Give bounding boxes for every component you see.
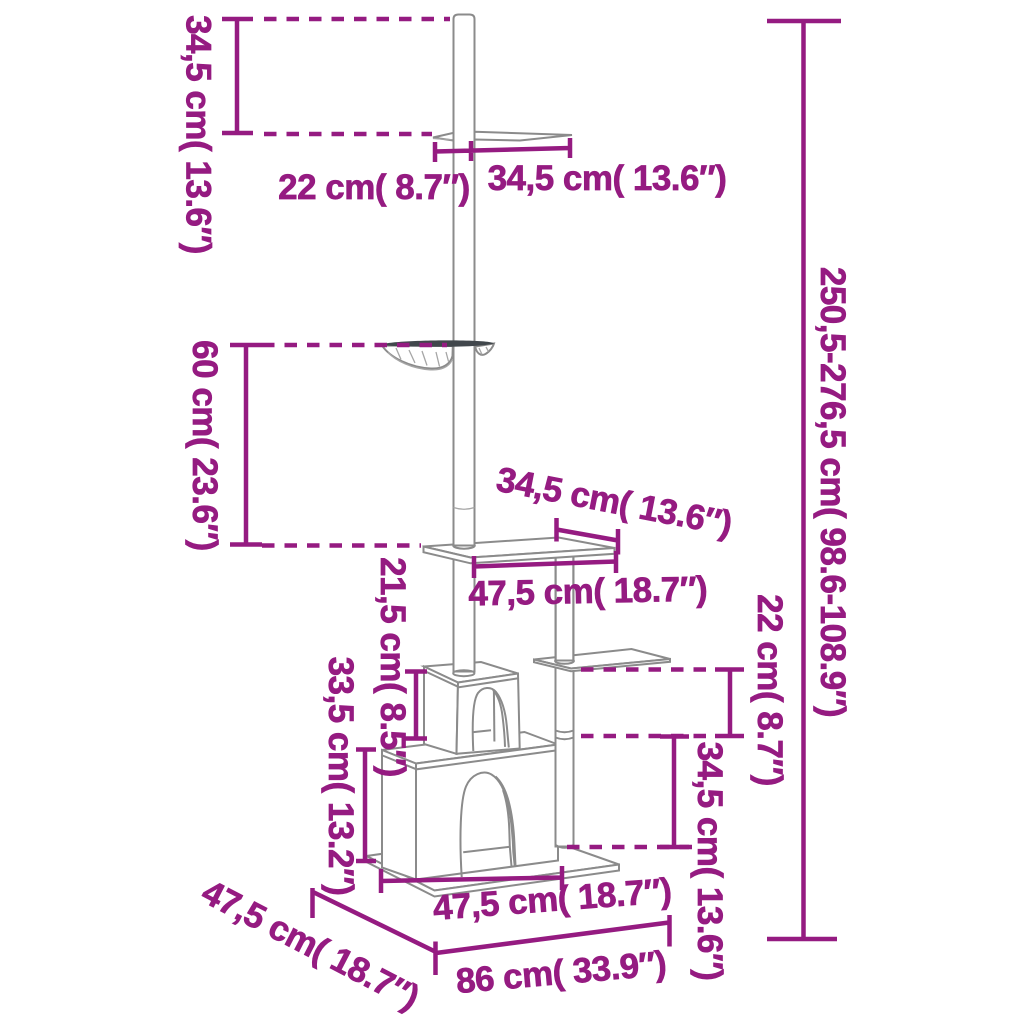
svg-text:60 cm( 23.6″): 60 cm( 23.6″)	[185, 340, 224, 551]
svg-text:34,5 cm( 13.6″): 34,5 cm( 13.6″)	[488, 159, 727, 198]
svg-text:22 cm( 8.7″): 22 cm( 8.7″)	[750, 594, 789, 786]
svg-text:22 cm( 8.7″): 22 cm( 8.7″)	[278, 168, 470, 207]
svg-text:33,5 cm( 13.2″): 33,5 cm( 13.2″)	[321, 657, 360, 896]
svg-text:34,5 cm( 13.6″): 34,5 cm( 13.6″)	[179, 15, 218, 254]
svg-text:34,5 cm( 13.6″): 34,5 cm( 13.6″)	[690, 742, 729, 981]
svg-text:250,5-276,5 cm( 98.6-108.9″): 250,5-276,5 cm( 98.6-108.9″)	[813, 267, 852, 717]
svg-text:47,5 cm( 18.7″): 47,5 cm( 18.7″)	[468, 570, 708, 614]
svg-text:21,5 cm( 8.5″): 21,5 cm( 8.5″)	[373, 557, 412, 777]
